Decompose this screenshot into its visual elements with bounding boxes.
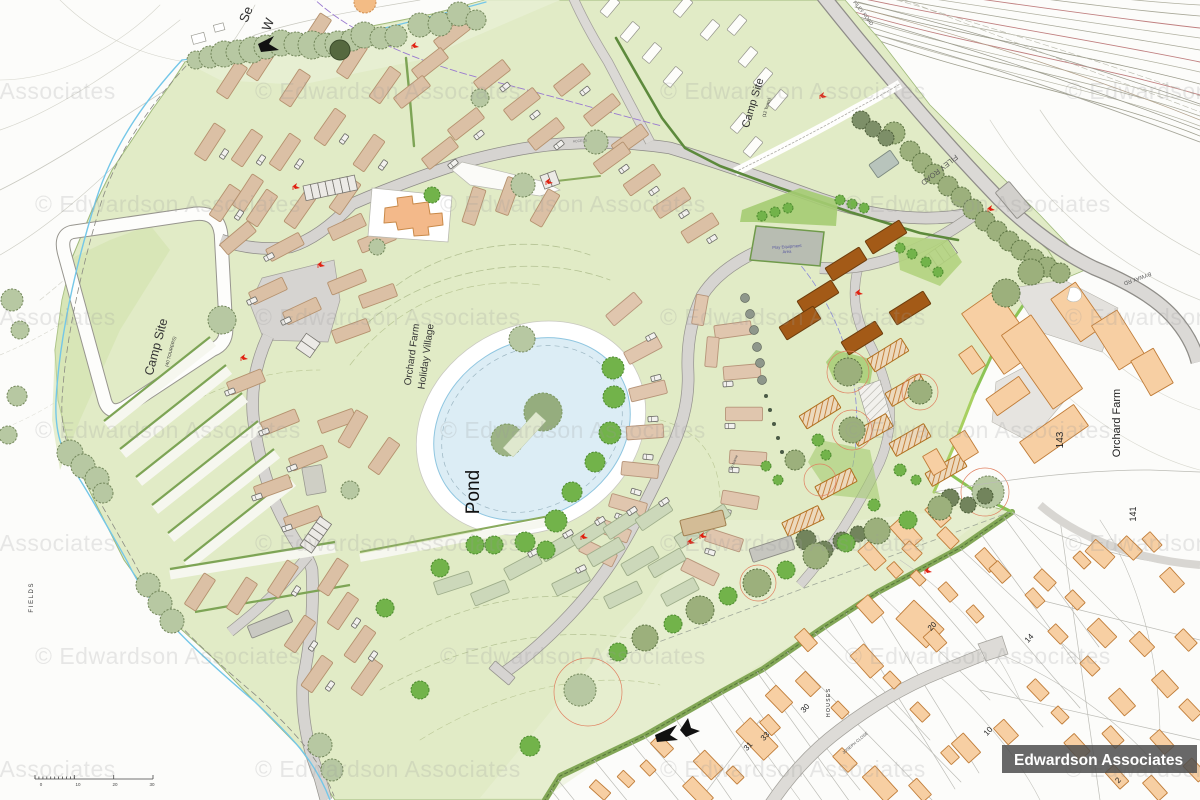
svg-text:© Edwardson Associates: © Edwardson Associates — [1065, 304, 1200, 330]
svg-text:© Edwardson Associates: © Edwardson Associates — [0, 756, 116, 782]
svg-text:20: 20 — [112, 782, 118, 787]
svg-text:© Edwardson Associates: © Edwardson Associates — [255, 78, 521, 104]
svg-text:© Edwardson Associates: © Edwardson Associates — [35, 191, 301, 217]
svg-text:© Edwardson Associates: © Edwardson Associates — [440, 643, 706, 669]
svg-text:© Edwardson Associates: © Edwardson Associates — [845, 643, 1111, 669]
svg-text:© Edwardson Associates: © Edwardson Associates — [440, 191, 706, 217]
svg-text:© Edwardson Associates: © Edwardson Associates — [0, 78, 116, 104]
svg-text:© Edwardson Associates: © Edwardson Associates — [660, 756, 926, 782]
svg-text:30: 30 — [149, 782, 155, 787]
svg-text:Edwardson Associates: Edwardson Associates — [1014, 752, 1183, 769]
svg-text:© Edwardson Associates: © Edwardson Associates — [255, 304, 521, 330]
svg-text:H O U S E S: H O U S E S — [826, 688, 832, 717]
svg-text:10: 10 — [75, 782, 81, 787]
svg-text:© Edwardson Associates: © Edwardson Associates — [255, 530, 521, 556]
svg-text:© Edwardson Associates: © Edwardson Associates — [660, 530, 926, 556]
svg-text:Orchard Farm: Orchard Farm — [1111, 389, 1123, 457]
svg-text:© Edwardson Associates: © Edwardson Associates — [1065, 78, 1200, 104]
svg-text:© Edwardson Associates: © Edwardson Associates — [255, 756, 521, 782]
svg-text:Pond: Pond — [463, 470, 484, 514]
svg-text:© Edwardson Associates: © Edwardson Associates — [1065, 530, 1200, 556]
svg-text:F I E L D S: F I E L D S — [29, 583, 35, 612]
svg-text:© Edwardson Associates: © Edwardson Associates — [35, 417, 301, 443]
svg-text:© Edwardson Associates: © Edwardson Associates — [845, 417, 1111, 443]
svg-text:Area: Area — [782, 249, 792, 255]
svg-text:141: 141 — [1128, 506, 1138, 521]
svg-text:© Edwardson Associates: © Edwardson Associates — [0, 530, 116, 556]
svg-text:© Edwardson Associates: © Edwardson Associates — [0, 304, 116, 330]
svg-text:© Edwardson Associates: © Edwardson Associates — [660, 304, 926, 330]
svg-text:© Edwardson Associates: © Edwardson Associates — [660, 78, 926, 104]
svg-text:© Edwardson Associates: © Edwardson Associates — [35, 643, 301, 669]
svg-text:© Edwardson Associates: © Edwardson Associates — [845, 191, 1111, 217]
svg-text:© Edwardson Associates: © Edwardson Associates — [440, 417, 706, 443]
